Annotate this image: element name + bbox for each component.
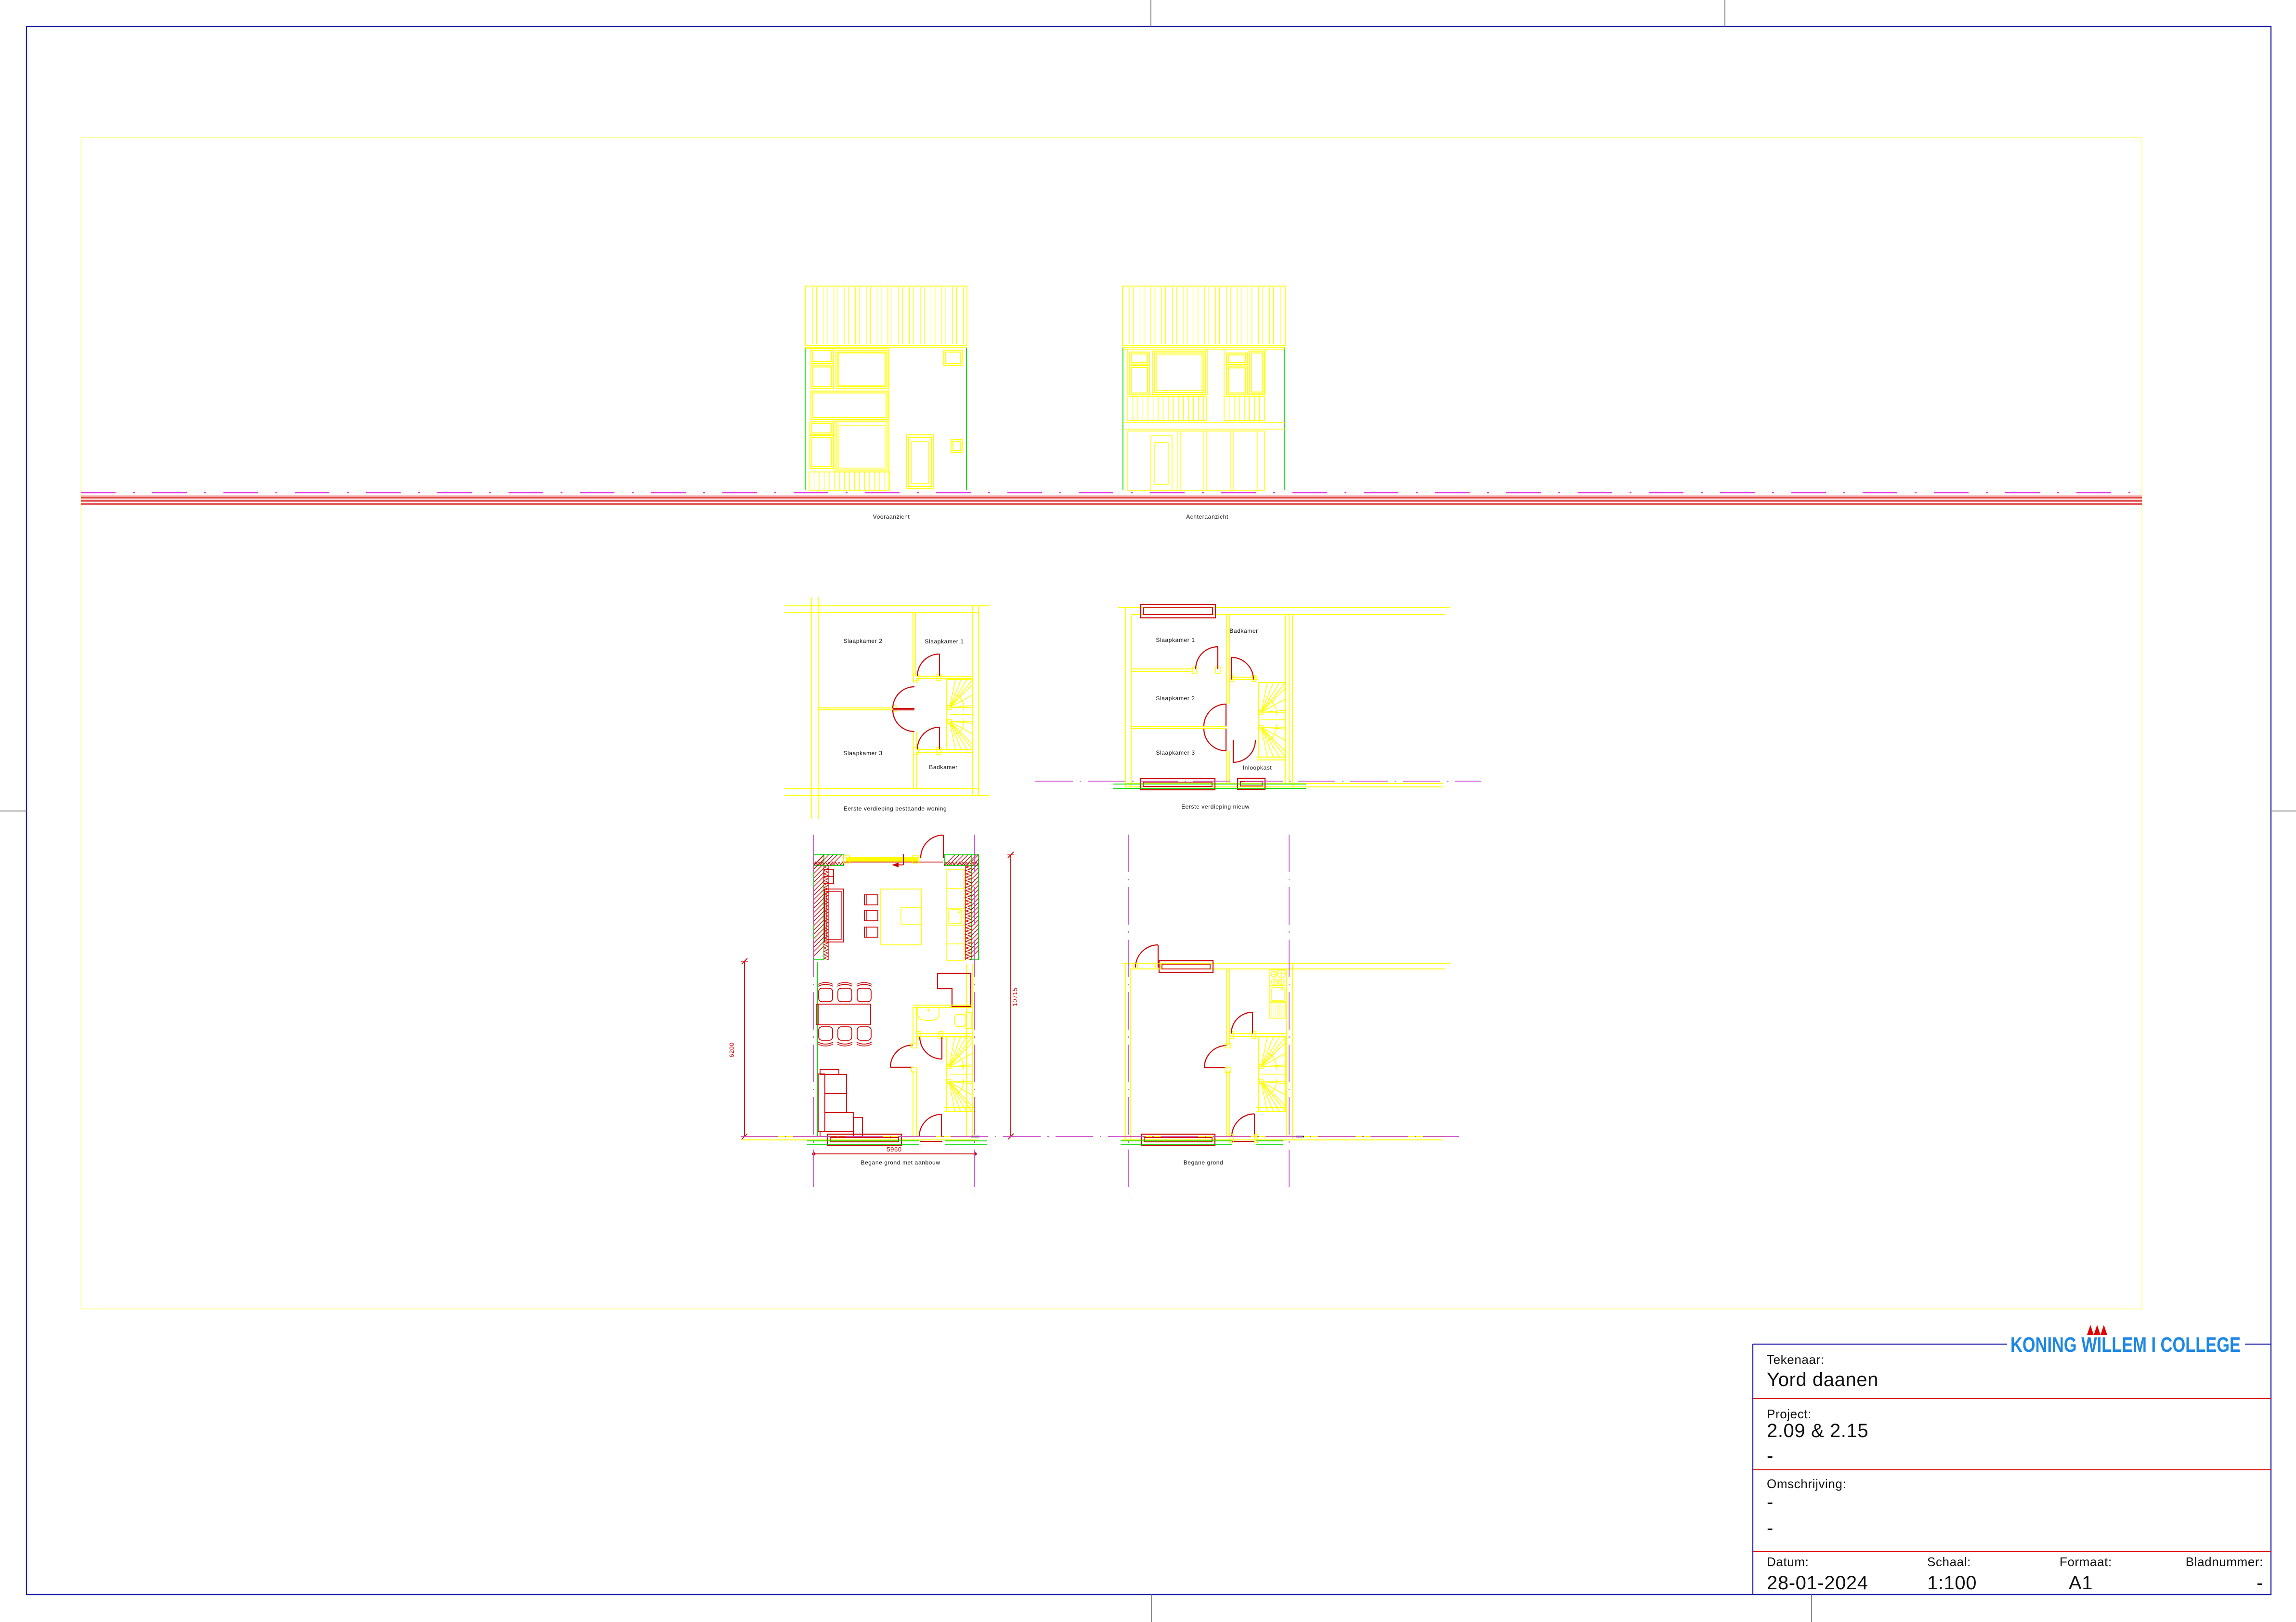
svg-text:5960: 5960	[887, 1146, 901, 1153]
svg-text:-: -	[2257, 1572, 2263, 1594]
svg-text:Badkamer: Badkamer	[1229, 628, 1258, 634]
svg-text:Inloopkast: Inloopkast	[1243, 764, 1272, 771]
svg-text:KONING WILLEM I COLLEGE: KONING WILLEM I COLLEGE	[2010, 1333, 2241, 1357]
svg-text:Slaapkamer 1: Slaapkamer 1	[925, 638, 964, 645]
svg-text:6200: 6200	[728, 1042, 735, 1057]
svg-text:Formaat:: Formaat:	[2060, 1555, 2112, 1569]
svg-text:Datum:: Datum:	[1767, 1555, 1809, 1569]
svg-text:Slaapkamer 2: Slaapkamer 2	[843, 638, 882, 644]
svg-text:-: -	[1767, 1445, 1774, 1466]
svg-text:Begane grond met aanbouw: Begane grond met aanbouw	[861, 1159, 940, 1166]
svg-text:Slaapkamer 3: Slaapkamer 3	[1156, 749, 1195, 756]
svg-text:Vooraanzicht: Vooraanzicht	[873, 513, 910, 520]
svg-text:Project:: Project:	[1767, 1407, 1812, 1421]
svg-text:Begane grond: Begane grond	[1184, 1159, 1224, 1166]
svg-text:Yord daanen: Yord daanen	[1767, 1369, 1879, 1390]
svg-text:Omschrijving:: Omschrijving:	[1767, 1477, 1846, 1491]
svg-text:Tekenaar:: Tekenaar:	[1767, 1352, 1825, 1367]
svg-text:Eerste verdieping bestaande wo: Eerste verdieping bestaande woning	[844, 805, 947, 812]
svg-text:1:100: 1:100	[1927, 1572, 1977, 1594]
svg-text:-: -	[1767, 1491, 1774, 1513]
svg-text:28-01-2024: 28-01-2024	[1767, 1572, 1868, 1594]
svg-text:10715: 10715	[1011, 987, 1018, 1006]
svg-text:Slaapkamer 3: Slaapkamer 3	[843, 750, 882, 757]
svg-text:Eerste verdieping nieuw: Eerste verdieping nieuw	[1181, 803, 1250, 810]
svg-text:Schaal:: Schaal:	[1927, 1555, 1971, 1569]
svg-text:A1: A1	[2069, 1572, 2093, 1594]
svg-text:Badkamer: Badkamer	[929, 764, 958, 771]
svg-text:Bladnummer:: Bladnummer:	[2186, 1555, 2263, 1569]
svg-text:Slaapkamer 1: Slaapkamer 1	[1156, 637, 1195, 643]
svg-text:Slaapkamer 2: Slaapkamer 2	[1156, 695, 1195, 702]
svg-text:2.09 & 2.15: 2.09 & 2.15	[1767, 1420, 1868, 1441]
svg-text:-: -	[1767, 1517, 1774, 1539]
svg-text:Achteraanzicht: Achteraanzicht	[1186, 513, 1228, 520]
